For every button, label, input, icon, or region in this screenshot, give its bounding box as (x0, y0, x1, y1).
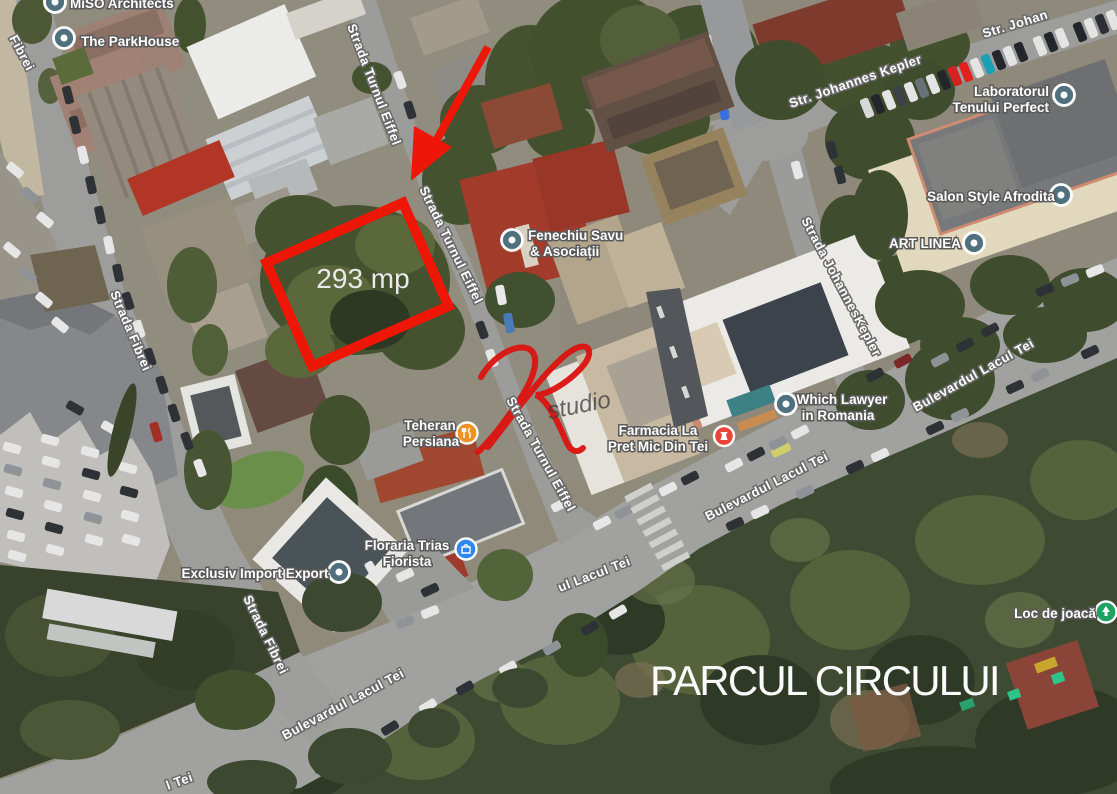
svg-text:MiSO Architects: MiSO Architects (70, 0, 174, 11)
svg-text:Teheran: Teheran (404, 418, 456, 433)
svg-text:ART LINEA: ART LINEA (889, 236, 961, 251)
svg-text:Fiorista: Fiorista (383, 554, 432, 569)
svg-text:Farmacia La: Farmacia La (619, 423, 698, 438)
svg-text:in Romania: in Romania (802, 408, 875, 423)
svg-text:Pret Mic Din Tei: Pret Mic Din Tei (608, 439, 708, 454)
svg-text:Loc de joacă: Loc de joacă (1014, 606, 1096, 621)
svg-text:Persiana: Persiana (403, 434, 460, 449)
svg-text:Floraria Trias: Floraria Trias (365, 538, 450, 553)
svg-text:Which Lawyer: Which Lawyer (797, 392, 889, 407)
svg-text:293 mp: 293 mp (316, 263, 409, 294)
svg-text:Salon Style Afrodita: Salon Style Afrodita (927, 189, 1055, 204)
svg-text:The ParkHouse: The ParkHouse (81, 34, 180, 49)
svg-text:Exclusiv Import Export: Exclusiv Import Export (181, 566, 329, 581)
svg-text:Fenechiu Savu: Fenechiu Savu (528, 228, 623, 243)
svg-text:Tenului Perfect: Tenului Perfect (952, 100, 1049, 115)
svg-text:PARCUL CIRCULUI: PARCUL CIRCULUI (650, 657, 999, 704)
svg-text:Laboratorul: Laboratorul (974, 84, 1049, 99)
svg-text:& Asociații: & Asociații (530, 244, 599, 259)
